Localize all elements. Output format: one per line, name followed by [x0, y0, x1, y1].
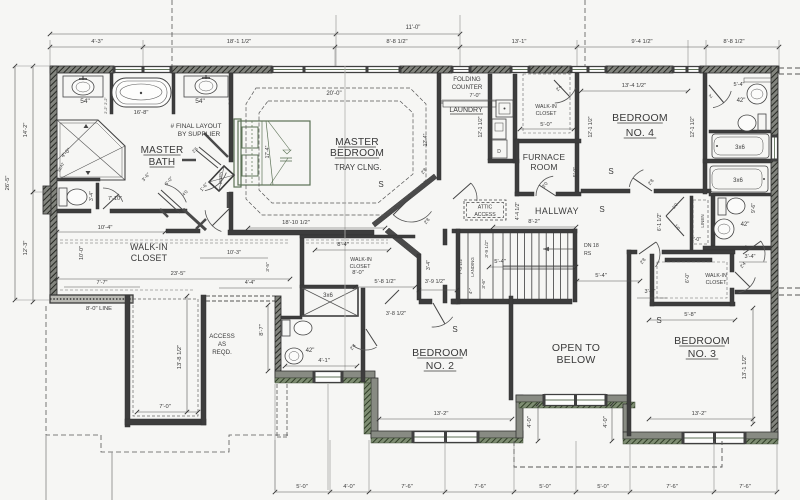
svg-text:54": 54" — [80, 98, 90, 105]
svg-text:FOLDING: FOLDING — [453, 76, 481, 83]
svg-text:3'-4": 3'-4" — [426, 260, 432, 270]
svg-text:7'-3 1/2": 7'-3 1/2" — [458, 257, 464, 275]
svg-text:10'-4": 10'-4" — [98, 225, 113, 231]
svg-text:3x6: 3x6 — [323, 293, 333, 299]
svg-text:HALLWAY: HALLWAY — [535, 206, 579, 216]
svg-text:3'-4": 3'-4" — [645, 289, 656, 295]
svg-text:OPEN TO: OPEN TO — [552, 342, 600, 354]
svg-text:S: S — [378, 180, 383, 189]
svg-text:13'-1": 13'-1" — [512, 39, 527, 45]
svg-text:S: S — [608, 167, 613, 176]
svg-text:ACCESS: ACCESS — [209, 333, 234, 340]
svg-text:RS: RS — [584, 251, 592, 257]
svg-text:3'-9 1/2": 3'-9 1/2" — [484, 240, 490, 258]
svg-text:5'-0": 5'-0" — [573, 167, 579, 177]
svg-text:7'-10": 7'-10" — [108, 196, 122, 202]
svg-text:11'-0": 11'-0" — [406, 25, 421, 31]
svg-text:S: S — [599, 205, 604, 214]
svg-text:12'-4": 12'-4" — [423, 133, 429, 146]
svg-text:42": 42" — [306, 348, 315, 354]
svg-text:4'-0": 4'-0" — [343, 484, 355, 490]
svg-text:MASTER: MASTER — [141, 145, 184, 156]
svg-text:13'-8 1/2": 13'-8 1/2" — [177, 345, 183, 369]
svg-text:8'-8 1/2": 8'-8 1/2" — [723, 39, 744, 45]
svg-text:9'-4 1/2": 9'-4 1/2" — [631, 39, 652, 45]
svg-text:13'-4 1/2": 13'-4 1/2" — [622, 83, 646, 89]
svg-text:42": 42" — [737, 98, 746, 104]
svg-text:3x6: 3x6 — [735, 145, 745, 151]
svg-text:MASTER: MASTER — [335, 137, 379, 148]
svg-text:14'-2": 14'-2" — [23, 123, 29, 138]
svg-text:12'-1 1/2": 12'-1 1/2" — [690, 116, 696, 137]
svg-text:3'-9 1/2": 3'-9 1/2" — [425, 279, 445, 285]
svg-text:4'-0": 4'-0" — [603, 416, 609, 428]
svg-text:5'-4": 5'-4" — [734, 82, 745, 88]
svg-text:2'-2": 2'-2" — [104, 97, 108, 105]
svg-text:10'-3": 10'-3" — [227, 250, 241, 256]
svg-text:5'-4": 5'-4" — [494, 259, 506, 265]
svg-text:17'-4": 17'-4" — [265, 145, 271, 158]
svg-text:LANDING: LANDING — [470, 257, 475, 277]
svg-text:WALK-IN: WALK-IN — [130, 242, 168, 252]
svg-text:ATTIC: ATTIC — [478, 205, 493, 211]
svg-text:9'-6": 9'-6" — [751, 203, 757, 213]
svg-text:D: D — [497, 149, 501, 155]
svg-text:NO. 3: NO. 3 — [688, 348, 716, 360]
svg-text:8'-7": 8'-7" — [259, 324, 265, 336]
svg-text:6'-0": 6'-0" — [685, 273, 691, 283]
svg-text:ACCESS: ACCESS — [474, 212, 496, 218]
svg-text:23'-5": 23'-5" — [171, 271, 186, 277]
svg-text:13'-1 1/2": 13'-1 1/2" — [742, 355, 748, 379]
svg-text:WALK-IN: WALK-IN — [350, 257, 372, 263]
svg-text:2'-2": 2'-2" — [228, 97, 232, 105]
svg-text:TRAY CLNG.: TRAY CLNG. — [334, 163, 381, 172]
svg-text:BATH: BATH — [149, 157, 176, 168]
svg-text:3'-8 1/2": 3'-8 1/2" — [386, 311, 406, 317]
svg-text:4'-4": 4'-4" — [245, 280, 255, 286]
svg-text:WALK-IN: WALK-IN — [535, 104, 557, 110]
svg-text:BEDROOM: BEDROOM — [612, 112, 668, 124]
svg-text:CLOSET: CLOSET — [706, 280, 728, 286]
svg-text:2'-0": 2'-0" — [691, 237, 701, 243]
svg-text:12'-1 1/2": 12'-1 1/2" — [478, 116, 484, 137]
svg-text:54": 54" — [195, 98, 205, 105]
svg-text:5'-0": 5'-0" — [540, 122, 552, 128]
svg-text:5'-8 1/2": 5'-8 1/2" — [374, 279, 395, 285]
svg-text:5'-8": 5'-8" — [684, 312, 696, 318]
svg-text:BEDROOM: BEDROOM — [412, 347, 468, 359]
svg-text:12'-1 1/2": 12'-1 1/2" — [588, 116, 594, 137]
svg-text:DN 18: DN 18 — [584, 243, 599, 249]
svg-text:3'-6": 3'-6" — [481, 279, 487, 289]
svg-text:WALK-IN: WALK-IN — [705, 273, 727, 279]
svg-text:8'-0" LINE: 8'-0" LINE — [86, 306, 112, 312]
svg-text:CLOSET: CLOSET — [536, 111, 558, 117]
svg-text:LINEN: LINEN — [700, 214, 705, 227]
svg-text:7'-6": 7'-6" — [739, 484, 751, 490]
svg-text:FURNACE: FURNACE — [523, 152, 566, 162]
svg-text:NO. 2: NO. 2 — [426, 360, 454, 372]
svg-text:8'-8 1/2": 8'-8 1/2" — [386, 39, 407, 45]
svg-text:ROOM: ROOM — [530, 162, 557, 172]
svg-text:BY SUPPLIER: BY SUPPLIER — [178, 131, 221, 138]
svg-text:BELOW: BELOW — [557, 354, 596, 366]
svg-text:S: S — [656, 316, 661, 325]
svg-text:12'-3": 12'-3" — [23, 241, 29, 256]
svg-text:CLOSET: CLOSET — [131, 253, 168, 263]
svg-text:7'-7": 7'-7" — [97, 280, 108, 286]
svg-text:13'-2": 13'-2" — [434, 411, 449, 417]
svg-text:7'-0": 7'-0" — [470, 93, 481, 99]
svg-text:CLOSET: CLOSET — [350, 264, 372, 270]
svg-text:4'-4 1/2": 4'-4 1/2" — [515, 202, 521, 221]
svg-text:6'-1 1/2": 6'-1 1/2" — [657, 213, 663, 232]
svg-text:5'-0": 5'-0" — [597, 484, 609, 490]
svg-text:8'-0": 8'-0" — [352, 270, 364, 276]
svg-text:10'-0": 10'-0" — [79, 246, 85, 260]
svg-text:COUNTER: COUNTER — [452, 84, 483, 91]
svg-text:18'-1 1/2": 18'-1 1/2" — [227, 39, 251, 45]
svg-text:4'-1": 4'-1" — [318, 358, 330, 364]
svg-text:5'-0": 5'-0" — [539, 484, 551, 490]
svg-text:5'-4": 5'-4" — [595, 273, 607, 279]
svg-text:LAUNDRY: LAUNDRY — [449, 107, 483, 114]
svg-text:26'-5": 26'-5" — [5, 176, 11, 191]
svg-text:8'-2": 8'-2" — [528, 219, 540, 225]
svg-text:13'-2": 13'-2" — [692, 411, 707, 417]
svg-text:7'-6": 7'-6" — [474, 484, 486, 490]
svg-text:5'-0": 5'-0" — [296, 484, 308, 490]
svg-text:3x6: 3x6 — [733, 178, 743, 184]
svg-text:BEDROOM: BEDROOM — [674, 335, 730, 347]
svg-text:REQD.: REQD. — [212, 349, 232, 356]
svg-text:16'-8": 16'-8" — [134, 110, 149, 116]
svg-text:4'-3": 4'-3" — [91, 39, 103, 45]
svg-text:3'-4": 3'-4" — [745, 254, 756, 260]
svg-text:7'-6": 7'-6" — [401, 484, 413, 490]
svg-text:3'-4": 3'-4" — [89, 191, 95, 201]
svg-text:NO. 4: NO. 4 — [626, 127, 654, 139]
svg-text:S: S — [452, 325, 457, 334]
svg-text:7'-6": 7'-6" — [666, 484, 678, 490]
svg-text:3'-5": 3'-5" — [265, 262, 271, 272]
svg-text:4'-": 4'-" — [468, 287, 473, 294]
svg-text:18'-10 1/2": 18'-10 1/2" — [282, 220, 310, 226]
svg-text:4'-0": 4'-0" — [527, 416, 533, 428]
svg-text:# FINAL LAYOUT: # FINAL LAYOUT — [171, 123, 222, 130]
svg-text:7'-0": 7'-0" — [159, 404, 171, 410]
svg-text:BEDROOM: BEDROOM — [330, 148, 384, 159]
svg-text:2'-2": 2'-2" — [104, 106, 108, 114]
svg-text:20'-0": 20'-0" — [326, 91, 341, 97]
svg-text:42": 42" — [741, 222, 750, 228]
svg-text:AS: AS — [218, 341, 226, 348]
svg-text:8'-4": 8'-4" — [337, 242, 349, 248]
